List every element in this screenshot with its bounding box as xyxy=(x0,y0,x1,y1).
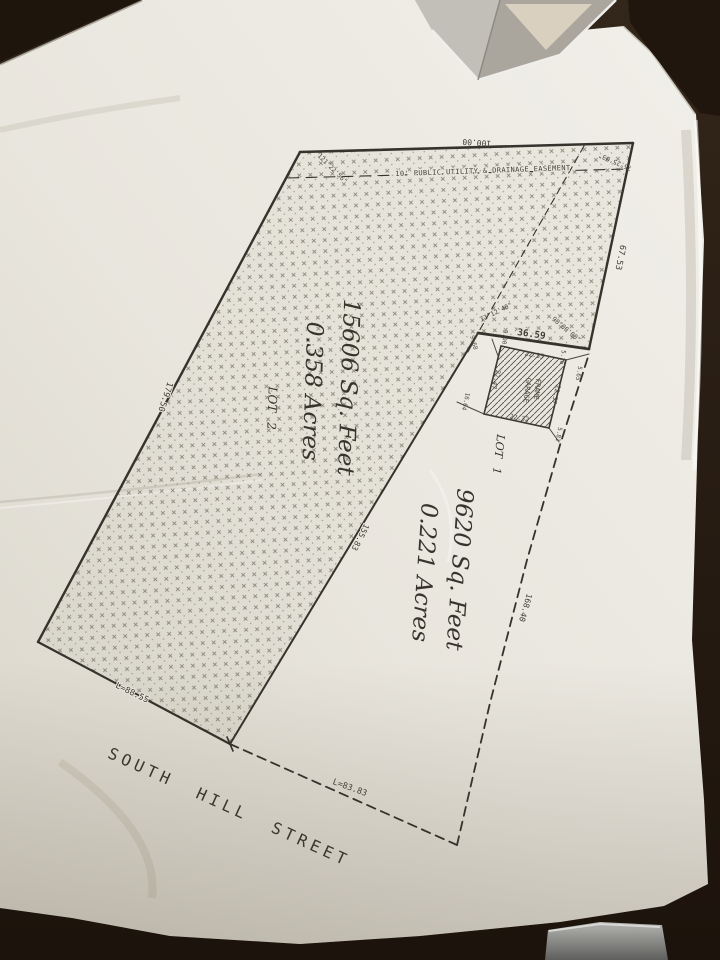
tie-300-label: 3.00 xyxy=(500,330,508,345)
plat-photo-canvas: 100.00 10' PUBLIC UTILITY & DRAINAGE EAS… xyxy=(0,0,720,960)
lot2-name-label: LOT 2 xyxy=(264,385,280,430)
lot2-acres-label: 0.358 Acres xyxy=(297,321,328,461)
photo-of-survey-plat: 100.00 10' PUBLIC UTILITY & DRAINAGE EAS… xyxy=(0,0,720,960)
metal-object xyxy=(545,922,668,960)
